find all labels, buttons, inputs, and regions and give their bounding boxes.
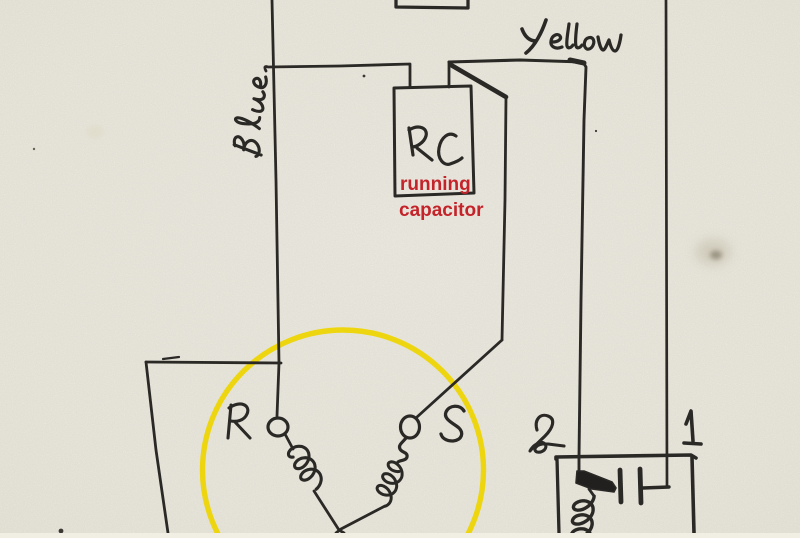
svg-text:running: running bbox=[400, 174, 471, 195]
svg-text:capacitor: capacitor bbox=[399, 200, 484, 221]
